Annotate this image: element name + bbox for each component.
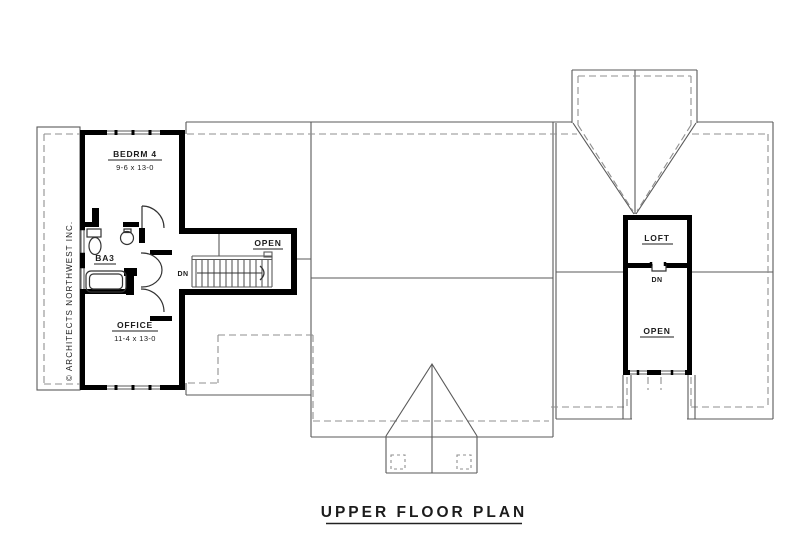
wall-segment [623, 370, 630, 375]
loft-name: LOFT [644, 233, 669, 243]
wall-segment [123, 222, 139, 227]
architect-title-strip: © ARCHITECTS NORTHWEST INC. [37, 127, 80, 390]
bath-labels: BA3 [94, 253, 116, 264]
main-roof-outline [186, 122, 773, 437]
toilet-tank [87, 229, 101, 237]
left-wing-doors [141, 206, 164, 312]
wall-segment [139, 228, 145, 243]
dormer-dashed-post-right [457, 455, 471, 469]
wall-segment [80, 130, 85, 228]
wall-segment [80, 293, 85, 390]
notch-ticks [651, 262, 665, 266]
bathtub-inner [90, 274, 123, 289]
bath-door-swing [141, 253, 162, 287]
wall-segment [647, 370, 661, 375]
toilet-bowl [89, 238, 101, 255]
office-labels: OFFICE 11-4 x 13-0 [112, 320, 158, 343]
wall-segment [179, 295, 185, 390]
wall-segment [687, 215, 692, 375]
wall-pillar [92, 208, 99, 227]
gable-outline [572, 70, 697, 214]
floor-plan-drawing: © ARCHITECTS NORTHWEST INC. [0, 0, 800, 545]
wall-segment [623, 215, 628, 375]
bedroom-door-swing [142, 206, 164, 228]
wall-segment [150, 316, 172, 321]
wall-segment [126, 276, 134, 295]
bedroom4-labels: BEDRM 4 9-6 x 13-0 [108, 149, 162, 172]
dormer-dashed-post-left [391, 455, 405, 469]
bedroom4-dims: 9-6 x 13-0 [116, 163, 154, 172]
wall-segment [80, 255, 85, 266]
wall-segment [179, 289, 297, 295]
wall-segment [628, 263, 652, 268]
office-name: OFFICE [117, 320, 153, 330]
bath-name: BA3 [95, 253, 114, 263]
office-door-swing [141, 289, 164, 312]
wall-segment [179, 228, 297, 234]
wall-segment [150, 250, 172, 255]
bedroom4-name: BEDRM 4 [113, 149, 157, 159]
wall-segment [80, 222, 92, 227]
sink-basin [121, 232, 134, 245]
sink-faucet [124, 229, 131, 233]
roof-ridge-lines [311, 272, 773, 278]
loft-block: LOFT DN OPEN [623, 215, 695, 419]
loft-down-label: DN [651, 277, 662, 284]
plan-title-group: UPPER FLOOR PLAN [321, 504, 527, 524]
front-gable-roof [572, 70, 697, 214]
wall-segment [291, 234, 297, 289]
watermark-text: © ARCHITECTS NORTHWEST INC. [65, 221, 74, 381]
wall-segment [623, 215, 692, 220]
wall-segment [179, 130, 185, 228]
dormer-outline [386, 364, 477, 473]
stair-hall-block: OPEN DN [177, 228, 297, 295]
stair-down-label: DN [177, 271, 188, 278]
loft-leg-lines [623, 375, 695, 419]
rear-dormer-roof [386, 364, 477, 473]
loft-open-label: OPEN [643, 326, 670, 336]
plan-title: UPPER FLOOR PLAN [321, 504, 527, 521]
office-dims: 11-4 x 13-0 [114, 334, 156, 343]
wall-segment [685, 370, 692, 375]
floor-plan-page: © ARCHITECTS NORTHWEST INC. [0, 0, 800, 545]
wall-segment [666, 263, 687, 268]
roof-outline-lines [186, 122, 773, 437]
stair-hall-open-label: OPEN [254, 238, 281, 248]
strip-dashed-inset [44, 134, 80, 384]
